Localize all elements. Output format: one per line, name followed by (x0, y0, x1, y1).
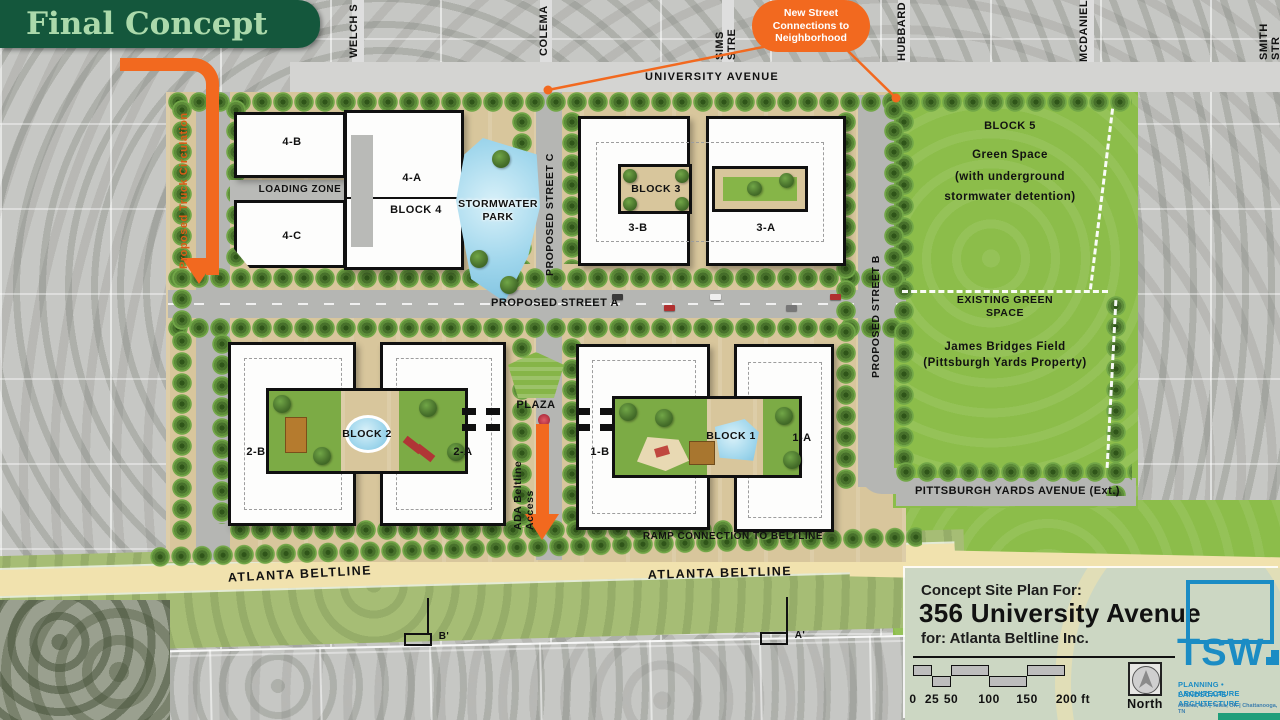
label-loading-zone: LOADING ZONE (240, 184, 360, 197)
courtyard-block2-tree-1 (273, 395, 291, 413)
tree-col-block5-west (884, 100, 904, 288)
courtyard-3b-tree-3 (623, 197, 637, 211)
car-3 (710, 294, 721, 300)
info-title: 356 University Avenue (919, 598, 1201, 629)
label-section-b: B' (434, 631, 454, 644)
car-2 (664, 305, 675, 311)
label-existing-green-2: SPACE (935, 307, 1075, 320)
label-pittsburgh-yards-property: (Pittsburgh Yards Property) (905, 356, 1105, 370)
site-plan-canvas: 4-B 4-C 4-A BLOCK 4 LOADING ZONE STORMWA… (0, 0, 1280, 720)
tree-row-street-a-south (168, 318, 906, 338)
label-block5-line3: stormwater detention) (920, 190, 1100, 204)
courtyard-3b-tree-1 (623, 169, 637, 183)
north-arrow-circle (1132, 666, 1160, 694)
building-4a (344, 110, 464, 270)
scale-label-150: 150 (1014, 692, 1040, 707)
section-b-marker (404, 633, 432, 646)
label-pittsburgh-yards-avenue: PITTSBURGH YARDS AVENUE (Ext.) (905, 485, 1130, 499)
tsw-corner-bar (1218, 713, 1280, 720)
section-b-line (427, 598, 429, 634)
car-1 (612, 294, 623, 300)
scale-label-25: 25 (922, 692, 942, 707)
scale-segment-4 (989, 676, 1027, 687)
label-hubbard-street: HUBBARD (894, 2, 910, 60)
section-a-marker (760, 632, 788, 645)
info-client: for: Atlanta Beltline Inc. (921, 630, 1089, 647)
north-arrow-pointer (1139, 670, 1153, 688)
courtyard-block2-tree-3 (419, 399, 437, 417)
label-ada-access: ADA Beltline Access (516, 422, 532, 530)
label-proposed-street-b: PROPOSED STREET B (868, 252, 884, 382)
courtyard-3b-tree-4 (675, 197, 689, 211)
tsw-bracket-mark (1266, 650, 1279, 665)
scale-label-50: 50 (941, 692, 961, 707)
stormwater-tree-3 (500, 276, 518, 294)
callout-new-street-connections: New Street Connections to Neighborhood (752, 0, 870, 52)
label-block5: BLOCK 5 (960, 120, 1060, 134)
block5-dashed-bottom (902, 290, 1108, 293)
label-welch-street: WELCH S (346, 2, 362, 60)
label-section-a: A' (790, 630, 810, 643)
label-stormwater-park: STORMWATER PARK (452, 198, 544, 224)
tree-row-pya-north (896, 462, 1132, 482)
label-unit-3a: 3-A (736, 222, 796, 236)
scale-bar-topline (913, 656, 1175, 658)
label-plaza: PLAZA (496, 399, 576, 413)
scale-label-200ft: 200 ft (1050, 692, 1096, 707)
label-truck-circulation: Proposed Truck Circulation (176, 96, 192, 286)
label-block2: BLOCK 2 (332, 428, 402, 441)
page-title: Final Concept (0, 6, 267, 42)
label-proposed-street-a: PROPOSED STREET A (455, 297, 655, 311)
ada-access-arrow (536, 424, 549, 516)
car-5 (830, 294, 841, 300)
scale-segment-2 (932, 676, 951, 687)
tree-row-street-a-north (168, 268, 906, 288)
label-smith-street: SMITH STR (1262, 2, 1278, 60)
scale-segment-3 (951, 665, 989, 676)
stormwater-tree-2 (470, 250, 488, 268)
info-panel: Concept Site Plan For: 356 University Av… (905, 568, 1280, 720)
courtyard-3a-tree-2 (779, 173, 794, 188)
courtyard-block1-tree-3 (775, 407, 793, 425)
tsw-wordmark-text: TSW (1177, 632, 1264, 674)
future-connection-dash-2 (462, 424, 508, 431)
tree-row-university-south (168, 92, 908, 112)
label-block1: BLOCK 1 (698, 430, 764, 443)
tree-row-block5-top (900, 92, 1132, 112)
label-north: North (1117, 697, 1173, 713)
label-university-avenue: UNIVERSITY AVENUE (592, 71, 832, 85)
label-block5-line2: (with underground (925, 170, 1095, 184)
car-4 (786, 305, 797, 311)
scale-segment-1 (913, 665, 932, 676)
label-unit-1b: 1-B (570, 446, 630, 460)
truck-circulation-arrow (120, 58, 219, 275)
label-proposed-street-c: PROPOSED STREET C (542, 148, 558, 282)
scale-label-100: 100 (976, 692, 1002, 707)
label-block5-line1: Green Space (940, 148, 1080, 162)
label-mcdaniel-street: MCDANIEL (1076, 2, 1092, 60)
block2-deck (285, 417, 307, 453)
label-unit-3b: 3-B (608, 222, 668, 236)
section-a-line (786, 597, 788, 633)
label-block3: BLOCK 3 (616, 183, 696, 196)
north-arrow (1128, 662, 1162, 696)
label-unit-2a: 2-A (433, 446, 493, 460)
label-sims-street: SIMS STRE (718, 2, 734, 60)
tsw-wordmark: TSW (1177, 632, 1279, 675)
label-coleman-street: COLEMA (536, 2, 552, 60)
aerial-trees-bottom-left (0, 600, 170, 720)
stormwater-tree-1 (492, 150, 510, 168)
block1-deck (689, 441, 715, 465)
label-unit-1a: 1-A (772, 432, 832, 446)
label-block4: BLOCK 4 (374, 204, 458, 218)
scale-label-0: 0 (905, 692, 921, 707)
label-stormwater-line2: PARK (483, 211, 514, 223)
label-existing-green-1: EXISTING GREEN (935, 294, 1075, 307)
courtyard-3b-tree-2 (675, 169, 689, 183)
courtyard-3a-tree-1 (747, 181, 762, 196)
info-kicker: Concept Site Plan For: (921, 582, 1082, 599)
label-stormwater-line1: STORMWATER (458, 198, 538, 210)
scale-segment-5 (1027, 665, 1065, 676)
courtyard-block1-tree-2 (655, 409, 673, 427)
courtyard-block2-tree-2 (313, 447, 331, 465)
label-unit-4c: 4-C (262, 230, 322, 244)
courtyard-block1-tree-4 (783, 451, 801, 469)
label-james-bridges: James Bridges Field (915, 340, 1095, 354)
label-unit-4b: 4-B (262, 136, 322, 150)
courtyard-3a (712, 166, 808, 212)
label-ramp-connection: RAMP CONNECTION TO BELTLINE (628, 531, 838, 544)
title-box: Final Concept (0, 0, 320, 48)
label-unit-2b: 2-B (226, 446, 286, 460)
courtyard-block1-tree-1 (619, 403, 637, 421)
label-unit-4a: 4-A (382, 172, 442, 186)
